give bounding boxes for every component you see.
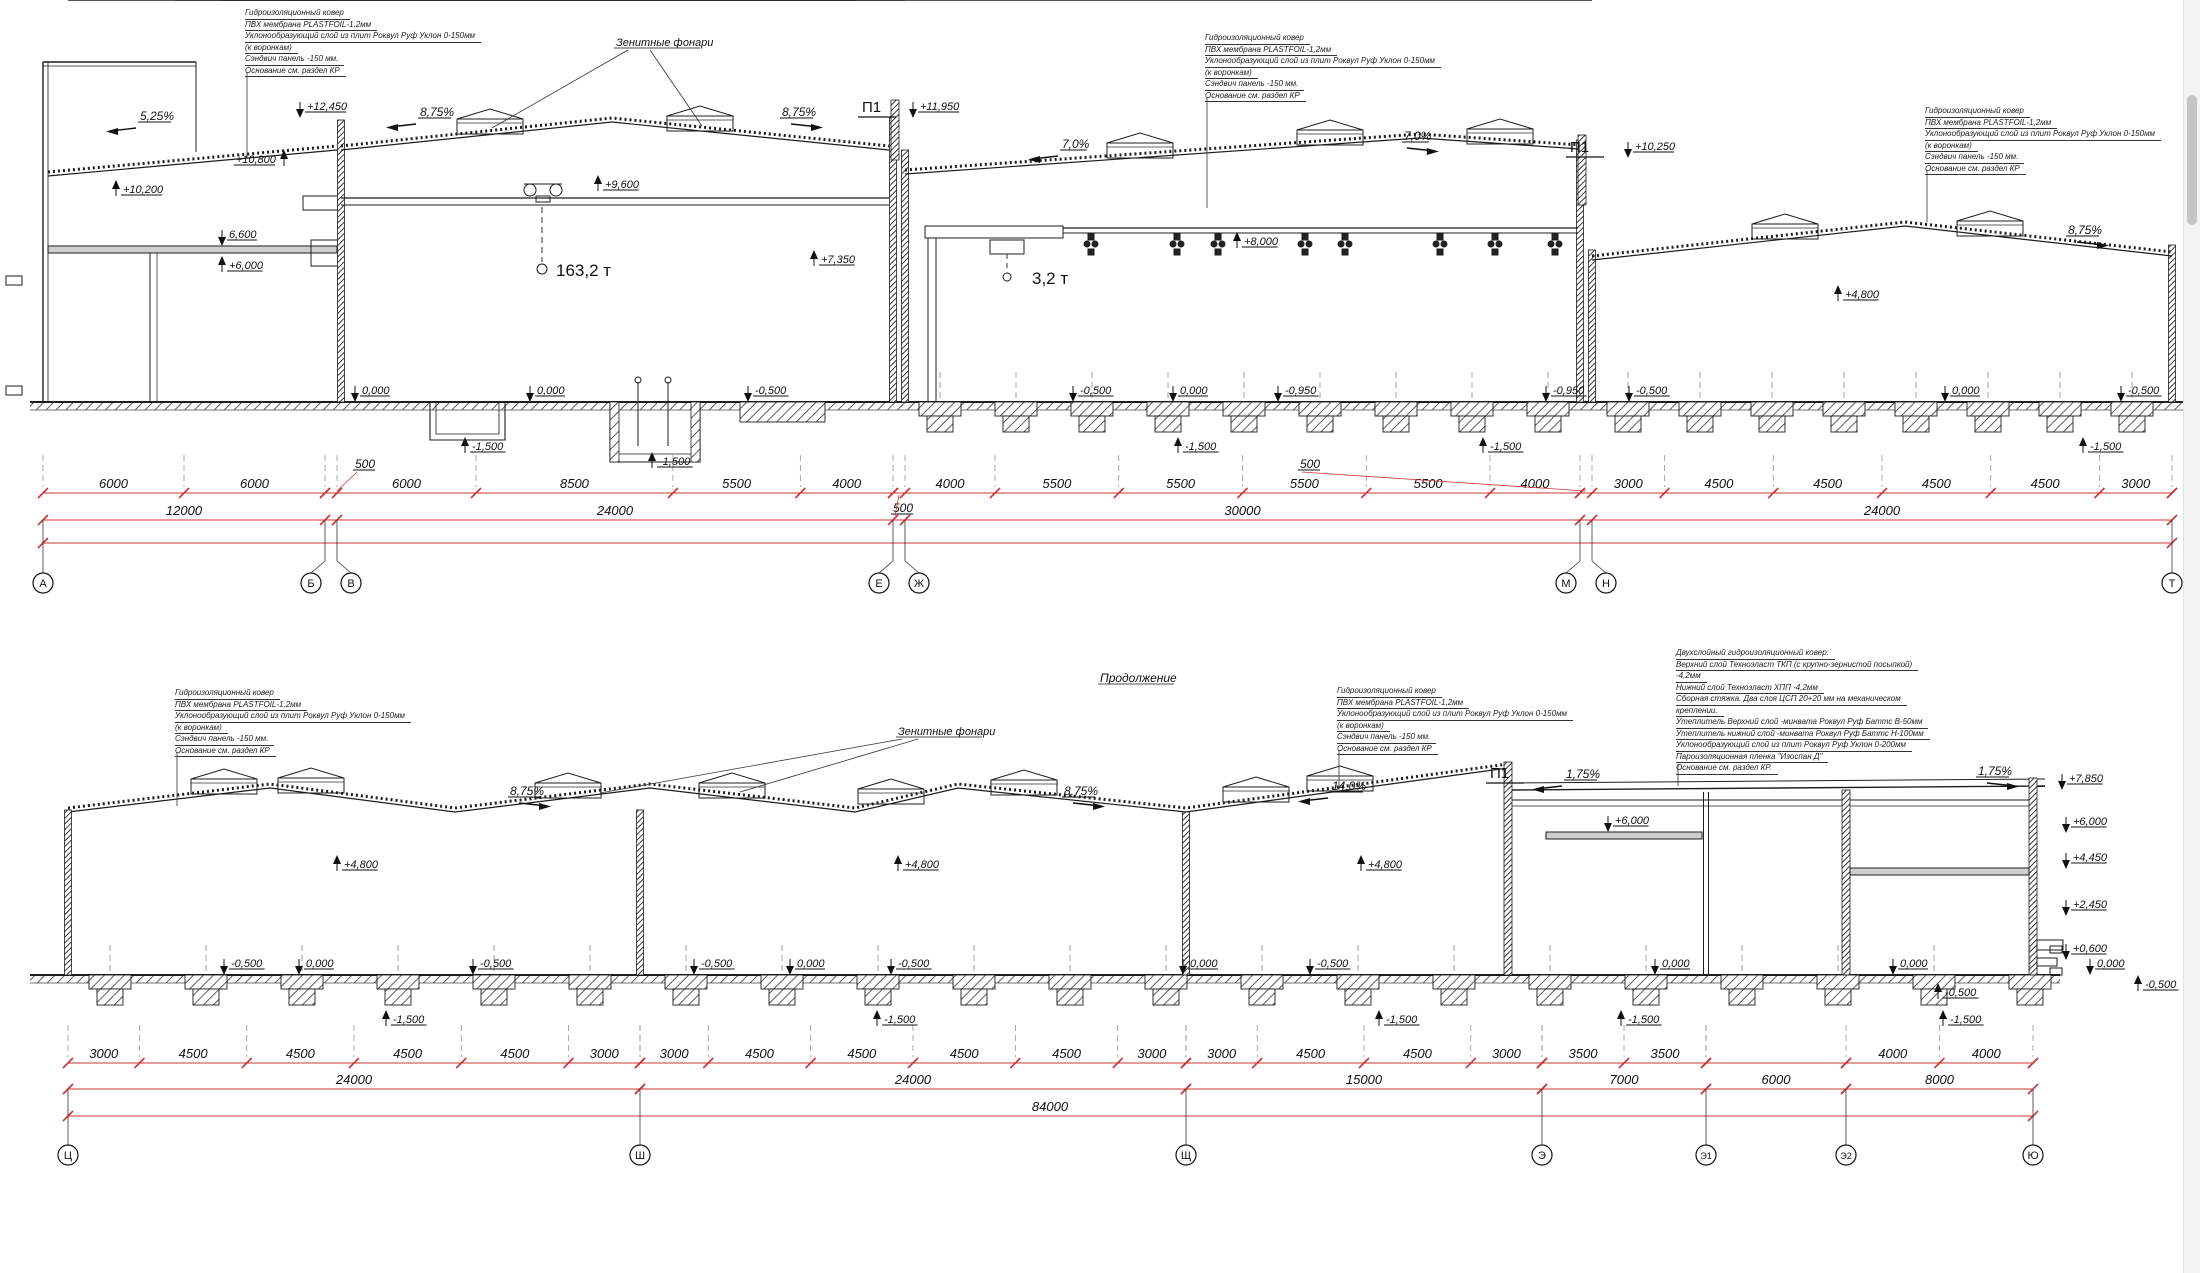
dim-total: 24000 (335, 1072, 373, 1087)
dim-value: 4500 (1922, 476, 1952, 491)
skylight-roof (1307, 766, 1373, 776)
footing (761, 975, 803, 989)
footing (1231, 416, 1257, 432)
elevation-value: +2,450 (2073, 899, 2108, 911)
crane-hook-block (536, 196, 550, 202)
dim-value: 3000 (590, 1046, 620, 1061)
slope-arrow-head (1427, 148, 1439, 155)
annotation-line: Сборная стяжка. Два слоя ЦСП 20+20 мм на… (1676, 694, 1907, 706)
footing (1679, 402, 1721, 416)
elevation-value: 0,000 (1662, 958, 1690, 970)
elevation-value: -0,500 (2145, 979, 2177, 991)
footing (1451, 402, 1493, 416)
annotation-line: креплении. (1676, 706, 1724, 718)
footing (89, 975, 131, 989)
monorail-trolley (1088, 249, 1094, 255)
elevation-value: -0,500 (1945, 987, 1977, 999)
dim-total: 15000 (1346, 1072, 1383, 1087)
roof-deck (48, 146, 337, 172)
footing (385, 989, 411, 1005)
footing (1967, 402, 2009, 416)
footing (1459, 416, 1485, 432)
monorail-trolley (1088, 233, 1094, 240)
skylight (1957, 221, 2023, 236)
annotation-line: Основание см. раздел КР (175, 746, 276, 758)
roof-deck (905, 134, 1580, 170)
footing (865, 989, 891, 1005)
footing (1903, 416, 1929, 432)
column (65, 810, 72, 975)
elevation-value: +11,950 (920, 101, 960, 113)
roof-deck (68, 764, 1508, 808)
monorail-trolley (1433, 241, 1440, 248)
axis-label: А (39, 578, 47, 590)
dim-offset-leader (337, 472, 357, 491)
dim-value: 4000 (1521, 476, 1551, 491)
elevation-value: +7,850 (2069, 773, 2104, 785)
footing (1537, 989, 1563, 1005)
pit-wall (610, 402, 619, 462)
skylight-label: Зенитные фонари (616, 37, 713, 49)
hoist-hook (1003, 273, 1011, 281)
slope-value: 5,25% (140, 109, 174, 123)
skylight-roof (991, 770, 1057, 780)
elevation-value: -0,500 (1317, 958, 1349, 970)
monorail-trolley (1215, 249, 1221, 255)
axis-stem (337, 561, 351, 573)
footing (1823, 402, 1865, 416)
elevation-value: +4,800 (1845, 289, 1880, 301)
footing (769, 989, 795, 1005)
mezzanine-slab (1850, 868, 2029, 875)
dim-value: 4500 (1296, 1046, 1326, 1061)
footing (1145, 975, 1187, 989)
roof-top-chord (48, 150, 337, 176)
elevation-value: -1,500 (1490, 441, 1522, 453)
structure-linework (6, 0, 2185, 1005)
slope-arrow-head (2007, 783, 2019, 790)
elevation-value: +10,250 (1635, 141, 1676, 153)
dim-total: 24000 (596, 503, 634, 518)
elevation-value: 0,000 (362, 385, 390, 397)
axis-label: Э (1538, 1150, 1546, 1162)
annotation-line: Сэндвич панель -150 мм. (245, 54, 344, 66)
footing (961, 989, 987, 1005)
axis-label: Ж (914, 578, 924, 590)
elevation-value: +9,600 (605, 179, 640, 191)
annotation-line: ПВХ мембрана PLASTFOIL-1,2мм (1205, 45, 1337, 57)
dim-value: 4500 (393, 1046, 423, 1061)
footing (2009, 975, 2051, 989)
elevation-value: -0,500 (1636, 385, 1668, 397)
dimension-system: 6000600012000600085005500400024000400055… (33, 455, 2182, 1165)
elevation-value: +6,000 (229, 260, 264, 272)
skylight-leader (600, 739, 902, 793)
footing (1633, 989, 1659, 1005)
panel-joint-label: П1 (862, 99, 881, 116)
monorail-trolley (1492, 233, 1498, 240)
dim-total: 12000 (166, 503, 203, 518)
footing (927, 416, 953, 432)
dim-value: 4500 (1052, 1046, 1082, 1061)
column (902, 150, 909, 402)
annotation-line: Уклонообразующий слой из плит Роквул Руф… (1676, 740, 1912, 752)
annotation-line: Пароизоляционная пленка "Изоспан Д" (1676, 752, 1828, 764)
dim-value: 4500 (286, 1046, 316, 1061)
dim-value: 4500 (745, 1046, 775, 1061)
monorail-trolley (1548, 241, 1555, 248)
crane-platform (925, 226, 1063, 238)
skylight-leader (492, 50, 628, 128)
footing (1721, 975, 1763, 989)
hoist-box (990, 240, 1024, 254)
footing (2047, 416, 2073, 432)
footing (1049, 975, 1091, 989)
dim-value: 6000 (392, 476, 422, 491)
monorail-trolley (1302, 233, 1308, 240)
dim-value: 4500 (179, 1046, 209, 1061)
elevation-value: +4,800 (905, 859, 940, 871)
elevation-value: 0,000 (1952, 385, 1980, 397)
monorail-trolley (1298, 241, 1305, 248)
roof-top-chord (68, 768, 1508, 812)
slope-value: 8,75% (420, 105, 454, 119)
footing (1921, 989, 1947, 1005)
skylight-label: Зенитные фонари (898, 726, 995, 738)
footing (1729, 989, 1755, 1005)
dim-value: 3000 (2121, 476, 2151, 491)
monorail-trolley (1492, 249, 1498, 255)
drawing-canvas: 6000600012000600085005500400024000400055… (0, 0, 2200, 1273)
footing (1607, 402, 1649, 416)
slope-value: 7,0% (1404, 129, 1432, 143)
wall-symbol (6, 276, 22, 285)
dim-value: 3000 (1207, 1046, 1237, 1061)
footing (289, 989, 315, 1005)
annotation-line: Основание см. раздел КР (1337, 744, 1438, 756)
annotation-line: Основание см. раздел КР. (1676, 763, 1778, 775)
annotation-box: Гидроизоляционный коверПВХ мембрана PLAS… (1925, 106, 2161, 175)
footing (1337, 975, 1379, 989)
dim-value: 3500 (1569, 1046, 1599, 1061)
skylight-roof (858, 779, 924, 789)
footing (185, 975, 227, 989)
footing (473, 975, 515, 989)
elevation-value: +4,800 (1368, 859, 1403, 871)
monorail-trolley (1215, 233, 1221, 240)
dim-value: 3500 (1651, 1046, 1681, 1061)
dim-value: 4000 (832, 476, 862, 491)
monorail-trolley (1552, 249, 1558, 255)
dim-value: 5500 (1290, 476, 1320, 491)
floor-slab (48, 246, 337, 253)
dim-value: 8500 (560, 476, 590, 491)
axis-stem (879, 561, 893, 573)
continuation-label: Продолжение (1100, 671, 1177, 685)
elevation-value: -1,500 (1950, 1014, 1982, 1026)
elevation-value: -1,500 (2090, 441, 2122, 453)
skylight-roof (1752, 214, 1818, 224)
elevation-value: 0,000 (797, 958, 825, 970)
monorail-trolley (1174, 249, 1180, 255)
footing (1383, 416, 1409, 432)
annotation-line: Основание см. раздел КР (245, 66, 346, 78)
annotation-line: Сэндвич панель -150 мм. (1337, 732, 1436, 744)
skylight-roof (191, 769, 257, 779)
elevation-value: -1,500 (1185, 441, 1217, 453)
panel-joint-label: П1 (1570, 139, 1589, 156)
footing (1345, 989, 1371, 1005)
dim-value: 4500 (1403, 1046, 1433, 1061)
dim-offset-value: 500 (1300, 457, 1320, 471)
dim-grand-total: 84000 (1032, 1099, 1069, 1114)
monorail-trolley (1437, 233, 1443, 240)
dim-value: 4500 (500, 1046, 530, 1061)
skylight-roof (1297, 120, 1363, 130)
elevation-value: +0,600 (2073, 943, 2108, 955)
dim-value: 5500 (1166, 476, 1196, 491)
monorail-trolley (1211, 241, 1218, 248)
drawing-element (610, 402, 700, 462)
axis-stem (1566, 561, 1580, 573)
crane-capacity-label: 3,2 т (1032, 269, 1068, 288)
wall-symbol (6, 386, 22, 395)
elevation-value: 0,000 (1180, 385, 1208, 397)
annotation-line: Основание см. раздел КР (1925, 164, 2026, 176)
footing (1003, 416, 1029, 432)
annotation-line: Гидроизоляционный ковер (1337, 686, 1442, 698)
crane-capacity-label: 163,2 т (556, 261, 611, 280)
footing (1433, 975, 1475, 989)
dim-total: 30000 (1224, 503, 1261, 518)
annotation-line: Уклонообразующий слой из плит Роквул Руф… (1337, 709, 1573, 721)
dim-value: 3000 (1492, 1046, 1522, 1061)
skylight-leader (650, 50, 702, 126)
annotation-line: (к воронкам) (1337, 721, 1390, 733)
footing (1375, 402, 1417, 416)
monorail-trolley (1178, 241, 1185, 248)
annotation-line: ПВХ мембрана PLASTFOIL-1,2мм (1337, 698, 1469, 710)
annotation-line: Уклонообразующий слой из плит Роквул Руф… (1205, 56, 1441, 68)
column (637, 810, 644, 975)
footing (1895, 402, 1937, 416)
column (1589, 250, 1596, 402)
elevation-value: -1,500 (659, 456, 691, 468)
monorail-trolley (1338, 241, 1345, 248)
axis-label: Т (2169, 578, 2176, 590)
footing (1079, 416, 1105, 432)
monorail-trolley (1496, 241, 1503, 248)
axis-label: Ю (2027, 1150, 2038, 1162)
axis-label: М (1561, 578, 1570, 590)
elevation-value: -0,950 (1285, 385, 1317, 397)
skylight-roof (1467, 119, 1533, 129)
footing (1249, 989, 1275, 1005)
axis-stem (905, 561, 919, 573)
axis-label: Ш (635, 1150, 645, 1162)
dim-offset-value: 500 (355, 457, 375, 471)
skylight-roof (1957, 211, 2023, 221)
skylight-roof (535, 773, 601, 783)
annotation-box: Гидроизоляционный коверПВХ мембрана PLAS… (245, 8, 481, 77)
footing (577, 989, 603, 1005)
skylight-roof (278, 768, 344, 778)
annotation-line: -4,2мм (1676, 671, 1707, 683)
dim-value: 5500 (1042, 476, 1072, 491)
skylight-roof (699, 773, 765, 783)
annotation-line: Утеплитель Верхний слой -минвата Роквул … (1676, 717, 1928, 729)
dim-value: 5500 (722, 476, 752, 491)
footing (1687, 416, 1713, 432)
annotation-line: Уклонообразующий слой из плит Роквул Руф… (175, 711, 411, 723)
annotation-line: Гидроизоляционный ковер (1205, 33, 1310, 45)
wall-symbol (2050, 968, 2062, 975)
dim-value: 6000 (240, 476, 270, 491)
slope-value: 8,75% (2068, 223, 2102, 237)
drawing-page: 6000600012000600085005500400024000400055… (0, 0, 2200, 1273)
column (1842, 790, 1850, 975)
annotation-line: Утеплитель нижний слой -минвата Роквул Р… (1676, 729, 1930, 741)
end-wall (1504, 762, 1512, 975)
dim-value: 4000 (936, 476, 966, 491)
elevation-value: -1,500 (1386, 1014, 1418, 1026)
monorail-trolley (1552, 233, 1558, 240)
footing (193, 989, 219, 1005)
drawing-labels: +12,450+10,800+10,2006,600+6,000+9,600+7… (106, 37, 2179, 1026)
elevation-value: -1,500 (884, 1014, 916, 1026)
elevation-value: +4,450 (2073, 852, 2108, 864)
slope-value: 8,75% (1064, 784, 1098, 798)
annotation-line: Гидроизоляционный ковер (1925, 106, 2030, 118)
monorail-trolley (1174, 233, 1180, 240)
roof-top-chord (905, 138, 1580, 174)
monorail-trolley (1346, 241, 1353, 248)
pit-wall (691, 402, 700, 462)
footing (1241, 975, 1283, 989)
footing (1529, 975, 1571, 989)
footing (919, 402, 961, 416)
annotation-line: ПВХ мембрана PLASTFOIL-1,2мм (1925, 118, 2057, 130)
axis-label: Е (875, 578, 882, 590)
footing (1831, 416, 1857, 432)
monorail-trolley (1556, 241, 1563, 248)
axis-label: Щ (1181, 1150, 1191, 1162)
slope-arrow-head (386, 124, 398, 131)
footing (569, 975, 611, 989)
annotation-line: (к воронкам) (245, 43, 298, 55)
monorail-trolley (1219, 241, 1226, 248)
monorail-trolley (1441, 241, 1448, 248)
footing (1825, 989, 1851, 1005)
trench (740, 402, 825, 422)
elevation-value: +10,200 (123, 184, 164, 196)
axis-label: Э1 (1700, 1151, 1711, 1161)
footing (995, 402, 1037, 416)
slope-value: 1,75% (1566, 767, 1600, 781)
slope-arrow-head (1298, 798, 1310, 805)
elevation-value: 6,600 (229, 229, 257, 241)
footing (953, 975, 995, 989)
dim-value: 4000 (1878, 1046, 1908, 1061)
dim-total: 7000 (1610, 1072, 1640, 1087)
dim-value: 4500 (950, 1046, 980, 1061)
annotation-line: Гидроизоляционный ковер (245, 8, 350, 20)
axis-label: Н (1602, 578, 1610, 590)
slope-arrow-head (1532, 786, 1544, 793)
annotation-line: Сэндвич панель -150 мм. (1205, 79, 1304, 91)
dim-value: 6000 (99, 476, 129, 491)
annotation-line: Уклонообразующий слой из плит Роквул Руф… (1925, 129, 2161, 141)
footing (665, 975, 707, 989)
monorail-trolley (1084, 241, 1091, 248)
annotation-box: Двухслойный гидроизоляционный ковер:Верх… (1676, 648, 1930, 775)
footing (1615, 416, 1641, 432)
slope-arrow-head (106, 128, 118, 135)
elevation-value: -0,500 (2128, 385, 2160, 397)
parapet (891, 100, 899, 160)
footing (1751, 402, 1793, 416)
drawing-element (1512, 786, 2045, 790)
dim-value: 4500 (2031, 476, 2061, 491)
annotation-line: ПВХ мембрана PLASTFOIL-1,2мм (175, 700, 307, 712)
elevation-value: -1,500 (393, 1014, 425, 1026)
skylight (858, 789, 924, 804)
footing (377, 975, 419, 989)
footing (1307, 416, 1333, 432)
footing (2111, 402, 2153, 416)
monorail-trolley (1092, 241, 1099, 248)
annotation-line: ПВХ мембрана PLASTFOIL-1,2мм (245, 20, 377, 32)
monorail-trolley (1342, 249, 1348, 255)
footing (2119, 416, 2145, 432)
dim-value: 5500 (1414, 476, 1444, 491)
dim-value: 3000 (1137, 1046, 1167, 1061)
footing (1441, 989, 1467, 1005)
slope-value: 7,0% (1062, 137, 1090, 151)
monorail-trolley (1306, 241, 1313, 248)
annotation-line: Уклонообразующий слой из плит Роквул Руф… (245, 31, 481, 43)
slope-value: 8,75% (510, 784, 544, 798)
footing (1153, 989, 1179, 1005)
footing (481, 989, 507, 1005)
elevation-value: -0,950 (1553, 385, 1585, 397)
dim-value: 4000 (1972, 1046, 2002, 1061)
elevation-value: +6,000 (2073, 816, 2108, 828)
dim-total: 24000 (894, 1072, 932, 1087)
crane-hook (537, 264, 547, 274)
dim-value: 4500 (1813, 476, 1843, 491)
footing (1299, 402, 1341, 416)
annotation-line: Нижний слой Техноэласт ХПП -4,2мм (1676, 683, 1824, 695)
footing (673, 989, 699, 1005)
footing (2017, 989, 2043, 1005)
skylight-roof (1223, 777, 1289, 787)
dim-value: 3000 (1614, 476, 1644, 491)
scrollbar-track[interactable] (2183, 0, 2200, 1273)
wall-step (2037, 958, 2057, 966)
scrollbar-thumb[interactable] (2187, 95, 2197, 225)
column (2169, 245, 2176, 402)
elevation-value: +8,000 (1244, 236, 1279, 248)
axis-stem (1592, 561, 1606, 573)
elevation-value: -0,500 (898, 958, 930, 970)
elevation-value: -0,500 (480, 958, 512, 970)
footing (857, 975, 899, 989)
annotation-line: Основание см. раздел КР (1205, 91, 1306, 103)
elevation-value: 0,000 (306, 958, 334, 970)
footing (1057, 989, 1083, 1005)
annotation-line: Двухслойный гидроизоляционный ковер: (1676, 648, 1835, 660)
